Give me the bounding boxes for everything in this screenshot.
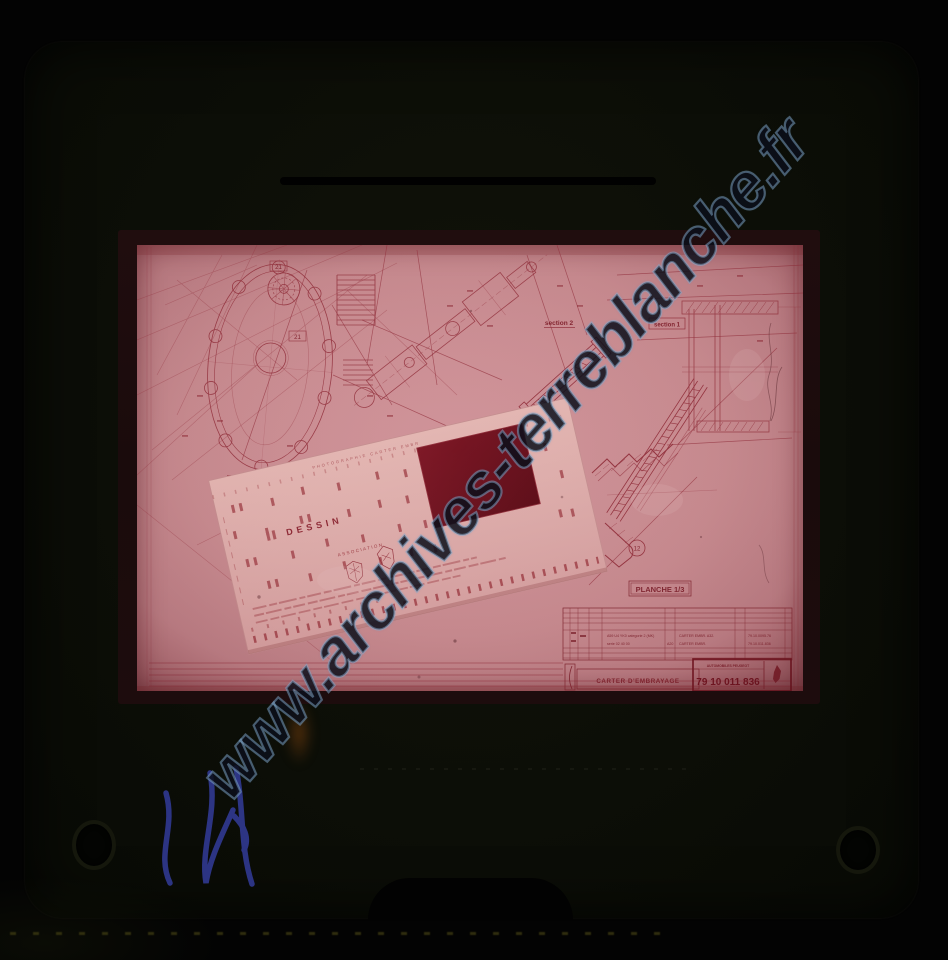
film-vignette [137,245,803,691]
engineering-drawing: 21 21 12 section 2 section 1 PHOTOGRAPHI… [137,245,803,691]
mount-slot [280,177,656,185]
blue-ink-scribble [148,698,378,928]
mount-rivet-left [72,820,116,870]
mount-rivet-right [836,826,880,874]
microfilm-frame: 21 21 12 section 2 section 1 PHOTOGRAPHI… [137,245,803,691]
thumb-notch [368,878,573,920]
slide-photo: 21 21 12 section 2 section 1 PHOTOGRAPHI… [0,0,948,960]
mount-embossing [360,768,690,770]
